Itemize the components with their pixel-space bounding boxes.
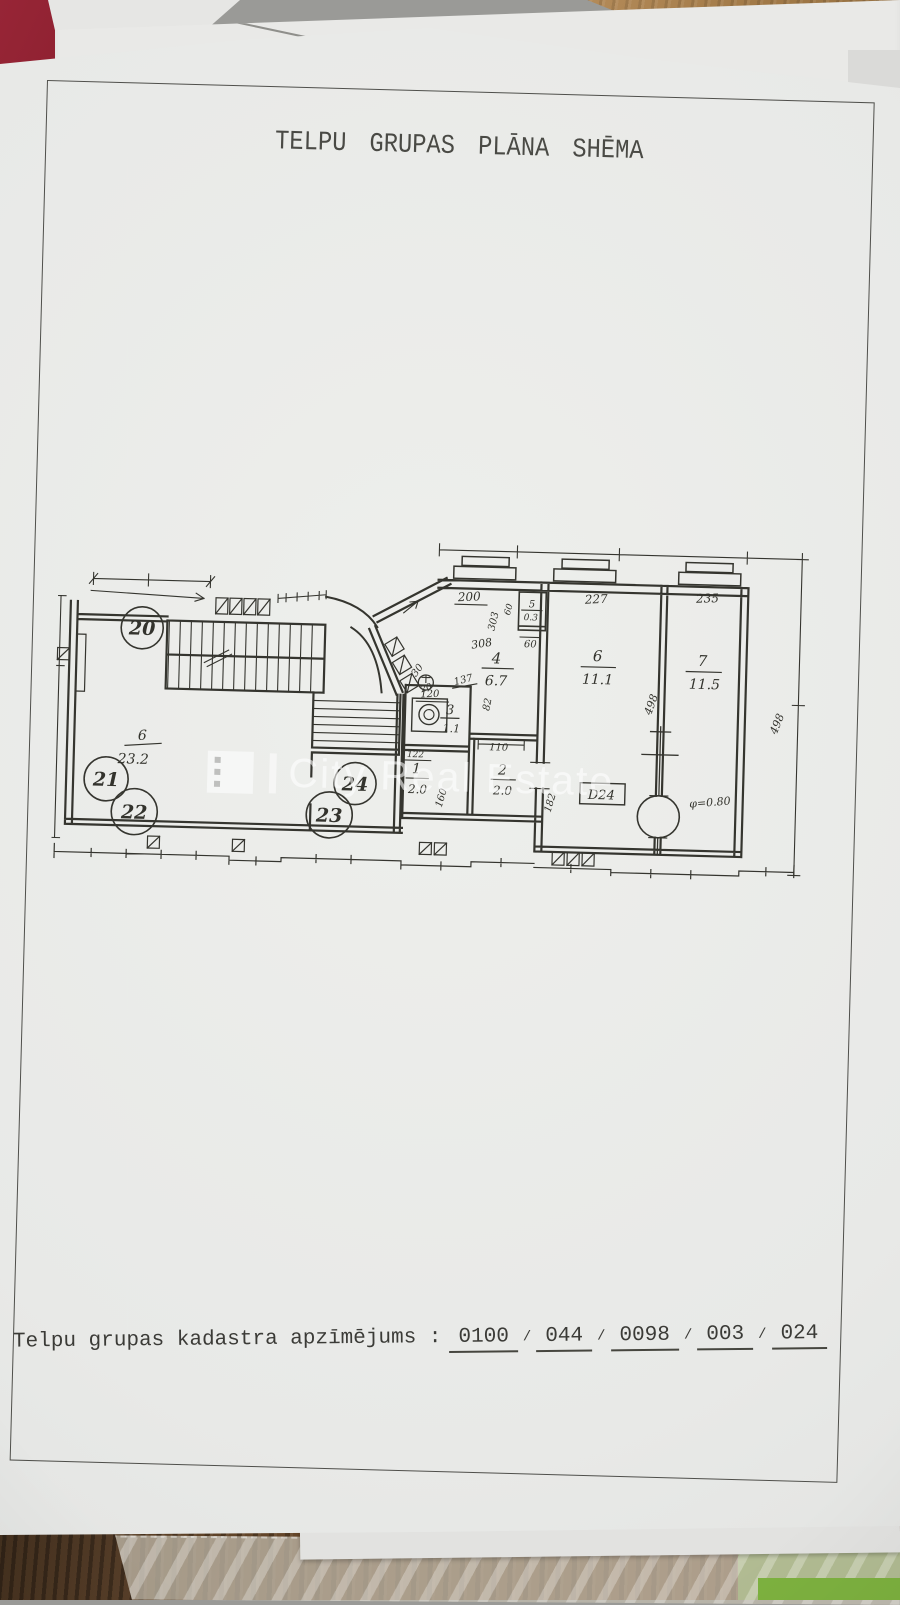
dim-60a: 60 <box>503 602 516 616</box>
room1-area: 2.0 <box>407 782 428 797</box>
room5-area: 0.3 <box>523 613 538 623</box>
room3-number: 3 <box>446 703 455 718</box>
green-object-edge <box>758 1578 900 1600</box>
dim-122: 122 <box>407 750 425 760</box>
room6-number: 6 <box>593 647 603 665</box>
room5-number: 5 <box>529 599 536 610</box>
room4-number: 4 <box>491 649 502 667</box>
cadastre-part-2: 044 <box>536 1325 592 1353</box>
document-sheet: TELPU GRUPAS PLĀNA SHĒMA <box>0 0 900 1600</box>
column-diameter-label: φ=0.80 <box>689 794 731 810</box>
valve-tick <box>422 675 430 682</box>
stair-treads <box>166 621 402 743</box>
cadastre-separator: / <box>684 1327 693 1343</box>
stairhall-area: 23.2 <box>116 751 149 768</box>
circle-24-number: 24 <box>341 773 369 796</box>
cadastre-part-1: 0100 <box>449 1325 518 1353</box>
dim-30: 30 <box>410 662 427 679</box>
dim-235: 235 <box>695 591 719 606</box>
dim-110: 110 <box>489 742 509 754</box>
room7-number: 7 <box>698 652 708 670</box>
cadastre-separator: / <box>523 1329 532 1345</box>
cadastre-separator: / <box>597 1328 606 1344</box>
room2-area: 2.0 <box>492 783 513 798</box>
round-column <box>637 795 680 838</box>
dim-60b: 60 <box>524 639 538 650</box>
dim-303: 303 <box>486 611 501 632</box>
door-label: D24 <box>587 788 615 804</box>
room2-number: 2 <box>497 762 507 778</box>
dim-308: 308 <box>470 636 493 652</box>
page-title: TELPU GRUPAS PLĀNA SHĒMA <box>275 127 644 167</box>
circle-23-number: 23 <box>315 805 343 828</box>
dim-498-outer: 498 <box>767 712 787 737</box>
room7-area: 11.5 <box>689 677 721 694</box>
cadastre-separator: / <box>758 1327 767 1343</box>
stairhall-number: 6 <box>138 728 147 744</box>
cadastre-part-5: 024 <box>771 1322 827 1350</box>
room4-area: 6.7 <box>485 673 508 690</box>
cadastre-part-4: 003 <box>697 1323 753 1351</box>
cadastre-part-3: 0098 <box>610 1324 679 1352</box>
cadastre-label: Telpu grupas kadastra apzīmējums : <box>13 1326 442 1353</box>
dim-227: 227 <box>584 592 609 607</box>
room1-number: 1 <box>412 761 421 777</box>
dim-160: 160 <box>434 787 450 809</box>
washer-drum-outer <box>419 704 440 725</box>
dim-182: 182 <box>543 792 559 813</box>
dim-200: 200 <box>457 589 482 604</box>
circle-21-number: 21 <box>92 768 120 791</box>
flue-lines <box>639 726 678 855</box>
page-border-frame: TELPU GRUPAS PLĀNA SHĒMA <box>10 80 875 1483</box>
room3-area: 1.1 <box>442 722 460 735</box>
floor-plan: 20 21 22 23 24 6 23.2 1 2.0 2 2.0 3 1.1 … <box>51 526 850 887</box>
circle-22-number: 22 <box>120 801 148 824</box>
washer-drum-inner <box>424 709 434 719</box>
room6-area: 11.1 <box>582 672 614 689</box>
circle-20-number: 20 <box>128 617 156 640</box>
dim-82: 82 <box>481 697 494 712</box>
